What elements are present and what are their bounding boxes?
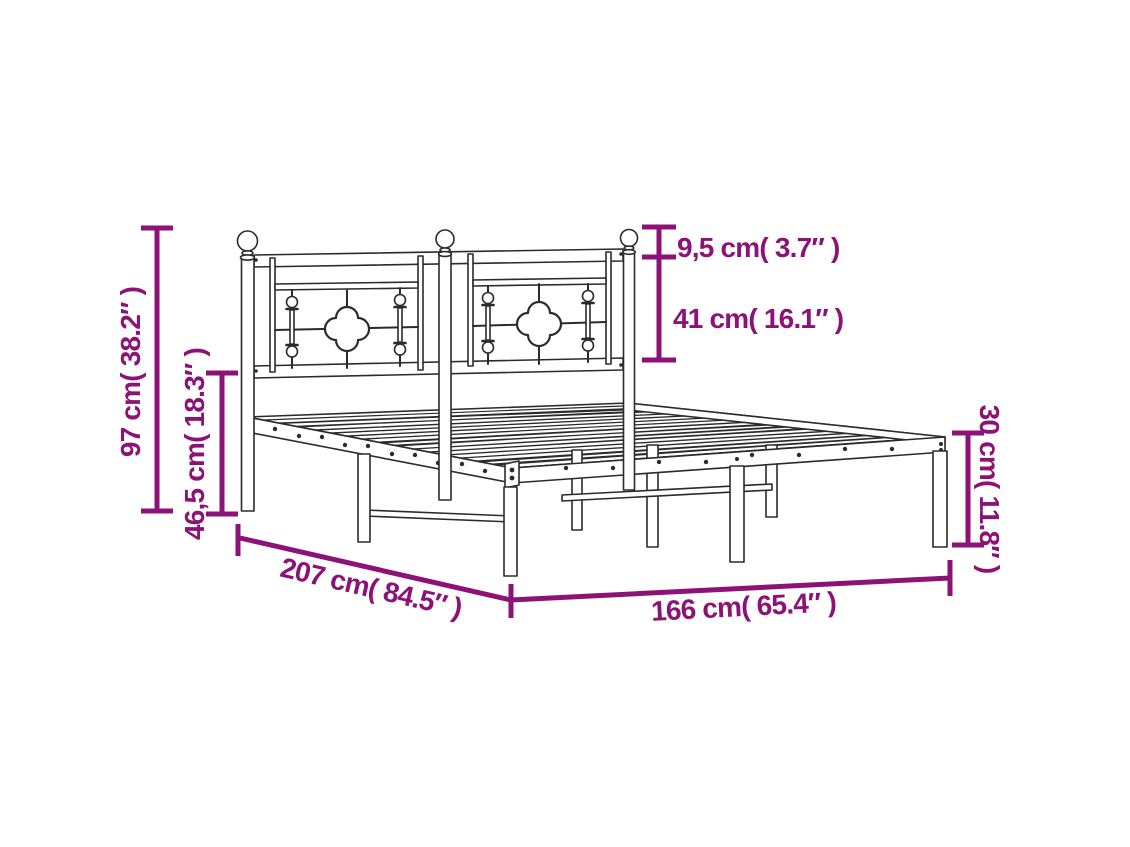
diagram-canvas: 97 cm( 38.2″ ) 46,5 cm( 18.3″ ) 9,5 cm( … (0, 0, 1130, 847)
dim-line-finial-and-panel (642, 227, 676, 360)
quatrefoil-ornament (517, 302, 561, 346)
ball-finial (436, 230, 454, 248)
ball-finial (621, 230, 638, 247)
corner-bracket (505, 461, 519, 488)
stretcher-bar (364, 510, 512, 522)
dim-label-length: 207 cm( 84.5″ ) (277, 552, 464, 624)
headboard-post-center (436, 230, 454, 500)
foot-center-leg (730, 466, 744, 562)
headboard-post-right (621, 230, 638, 491)
ball-finial (238, 231, 258, 251)
product-dimension-diagram: 97 cm( 38.2″ ) 46,5 cm( 18.3″ ) 9,5 cm( … (0, 0, 1130, 847)
bed-frame-drawing (238, 230, 948, 577)
dim-label-frame-height: 30 cm( 11.8″ ) (974, 405, 1005, 574)
headboard-post-left (238, 231, 258, 511)
front-left-leg (504, 487, 517, 576)
dim-line-base-height (206, 373, 238, 514)
dim-label-finial-height: 9,5 cm( 3.7″ ) (677, 232, 840, 263)
headboard-panel-left (270, 256, 423, 372)
dim-label-base-height: 46,5 cm( 18.3″ ) (179, 348, 210, 540)
support-leg (572, 450, 582, 530)
dim-label-overall-height: 97 cm( 38.2″ ) (115, 287, 146, 457)
front-right-leg (933, 451, 947, 547)
side-center-leg (358, 454, 370, 542)
headboard-panel-right (468, 252, 611, 366)
quatrefoil-ornament (325, 307, 369, 351)
dim-label-headboard-panel-height: 41 cm( 16.1″ ) (673, 303, 843, 334)
